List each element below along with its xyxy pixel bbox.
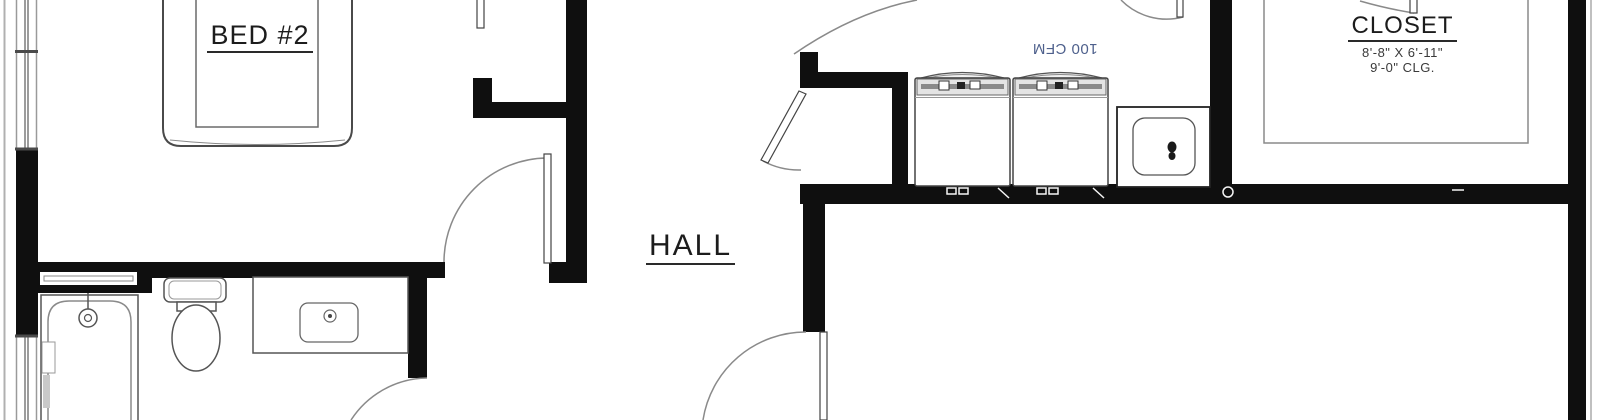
room-label-closet-text: CLOSET <box>1348 12 1456 42</box>
room-label-closet: CLOSET <box>1330 12 1475 40</box>
pocket-door-bathroom <box>40 272 137 285</box>
door-hall-bottom <box>703 332 827 420</box>
laundry-sink <box>1117 107 1210 187</box>
door-bathroom-lower <box>351 378 427 420</box>
door-bed2 <box>444 154 551 263</box>
room-label-hall-text: HALL <box>646 229 735 265</box>
window-bathroom <box>15 336 38 420</box>
closet-dimensions: 8'-8" X 6'-11" <box>1330 45 1475 60</box>
door-arc-upper-middle <box>1121 0 1183 19</box>
washer-1 <box>915 73 1010 187</box>
exhaust-fan-annotation: 100 CFM <box>1015 40 1115 57</box>
room-label-bed2-text: BED #2 <box>207 20 312 53</box>
door-laundry <box>761 91 806 170</box>
room-label-bed2: BED #2 <box>175 20 345 51</box>
toilet <box>164 278 226 371</box>
washer-2 <box>1013 73 1108 187</box>
floor-plan: BED #2 HALL CLOSET 8'-8" X 6'-11" 9'-0" … <box>0 0 1600 420</box>
door-leaf-bed2-top <box>477 0 484 28</box>
bathtub <box>41 293 138 420</box>
closet-ceiling-height: 9'-0" CLG. <box>1330 60 1475 75</box>
door-arc-hall-upper <box>794 0 917 54</box>
window-bed2 <box>15 0 38 149</box>
vanity-sink <box>253 277 408 353</box>
room-label-hall: HALL <box>633 229 748 263</box>
wall-marks <box>947 187 1464 198</box>
